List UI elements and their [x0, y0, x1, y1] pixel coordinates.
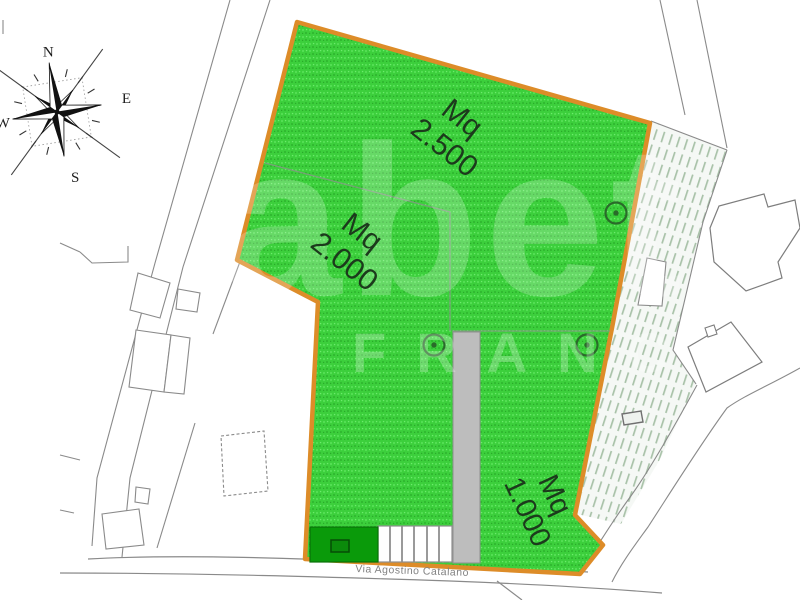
- parking-bays: [378, 526, 452, 562]
- building-outline: [135, 487, 150, 504]
- building-outline: [176, 289, 200, 312]
- watermark-word-small: FRANC: [352, 321, 698, 384]
- street-name-label: Via Agostino Catalano: [355, 563, 469, 579]
- road-left-edge-line: [92, 0, 230, 546]
- compass-letters: N E S W: [0, 32, 144, 197]
- boundary-spur: [60, 510, 74, 513]
- dark-green-block: [310, 527, 378, 562]
- compass-label-north: N: [43, 45, 54, 61]
- building-outline: [688, 322, 762, 392]
- site-plan-drawing: abet FRANC Mq 2.500 Mq 2.000 Mq 1.000 Vi…: [0, 0, 800, 600]
- compass-label-east: E: [122, 91, 131, 107]
- building-outline: [130, 273, 170, 318]
- building-outline-dashed: [221, 431, 268, 496]
- street-edge-lower: [60, 573, 662, 593]
- building-outline: [102, 509, 144, 549]
- dark-green-inner-rect: [331, 540, 349, 552]
- site-plan-canvas: abet FRANC Mq 2.500 Mq 2.000 Mq 1.000 Vi…: [0, 0, 800, 600]
- compass-rose: N E S W: [0, 32, 144, 197]
- small-marker-rect: [622, 411, 643, 425]
- compass-label-west: W: [0, 116, 11, 132]
- road-line-top-right: [660, 0, 685, 115]
- road-line-top-right: [697, 0, 727, 148]
- boundary-spur: [60, 243, 80, 252]
- boundary-spur: [60, 455, 80, 460]
- parcel-boundary-line: [157, 423, 195, 548]
- building-outline: [710, 194, 800, 291]
- compass-cardinal-points: [5, 56, 109, 164]
- compass-label-south: S: [71, 170, 79, 186]
- parcel-boundary-segment: [80, 246, 128, 263]
